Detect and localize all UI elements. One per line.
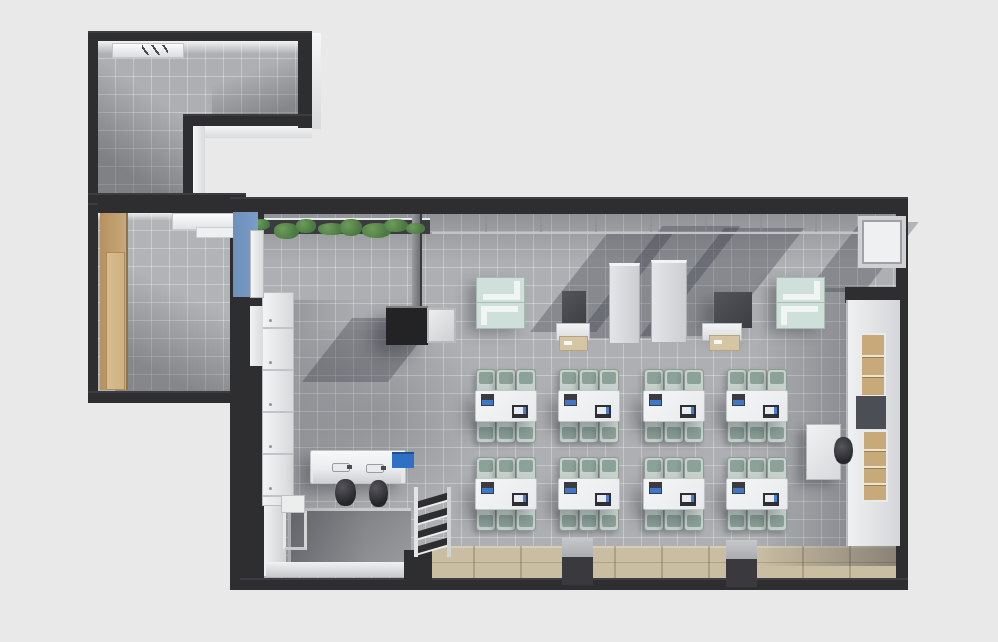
wall-face [195, 126, 312, 138]
wall [88, 31, 98, 203]
plant [406, 223, 425, 234]
locker-handle [269, 445, 272, 448]
locker-handle [269, 319, 272, 322]
wall-face [312, 33, 321, 129]
laptop [564, 482, 577, 494]
tablet-device [763, 405, 779, 418]
structural-pillar [562, 538, 593, 585]
cubby-shelf [864, 449, 886, 451]
small-side-table [281, 495, 305, 513]
sofa [476, 302, 525, 329]
blue-accent-panel [392, 452, 414, 468]
floor-plan-scene [0, 0, 998, 642]
stool [369, 480, 388, 507]
rack-slat [418, 523, 447, 538]
locker-drawer-line [263, 369, 293, 371]
wall-face [266, 562, 410, 577]
wardrobe-door [106, 252, 125, 390]
wall [88, 203, 98, 403]
desk-cluster-r1-c3 [643, 390, 703, 420]
pillar-cap [726, 540, 757, 560]
copier-machine [427, 308, 456, 343]
locker-handle [269, 487, 272, 490]
laptop [481, 482, 494, 494]
rack-slat [418, 508, 447, 523]
laptop [481, 394, 494, 406]
utility-room-floor-leg [98, 41, 183, 196]
pillar-body [562, 557, 593, 585]
cubby-shelf [864, 483, 886, 485]
laptop [564, 394, 577, 406]
sink-counter-front [313, 470, 401, 483]
locker-handle [269, 403, 272, 406]
wall-panel [250, 306, 263, 366]
desk-cluster-r2-c4 [726, 478, 786, 508]
desk-cluster-r2-c1 [475, 478, 535, 508]
mint-sofa-pair-right [776, 277, 823, 327]
small-side-table-legs [283, 511, 307, 550]
display-lectern-desk [559, 336, 588, 351]
structural-pillar [726, 540, 757, 587]
whiteboard-rail [432, 215, 898, 234]
pillar-body [726, 559, 757, 587]
copier-station-cabinet [386, 306, 428, 345]
locker-drawer-line [263, 327, 293, 329]
rack-slat [418, 538, 447, 553]
tablet-device [512, 405, 528, 418]
locker-drawer-line [263, 453, 293, 455]
laptop [649, 482, 662, 494]
mint-sofa-pair-left [476, 277, 523, 327]
tall-cabinet [609, 263, 640, 344]
wall [183, 114, 193, 203]
cubby-shelf [864, 466, 886, 468]
stool [335, 479, 356, 506]
ladder-rack [414, 487, 451, 557]
locker-drawer-line [263, 411, 293, 413]
desk-cluster-r2-c3 [643, 478, 703, 508]
rack-slat [418, 493, 447, 508]
tablet-device [763, 493, 779, 506]
cubby-shelf [862, 375, 884, 377]
desk-cluster-r1-c2 [558, 390, 618, 420]
tablet-device [680, 493, 696, 506]
desk-cluster-r1-c1 [475, 390, 535, 420]
side-room-counter-step [196, 227, 235, 238]
door-panel [250, 230, 264, 298]
counter-fixtures [142, 45, 168, 55]
wall [183, 114, 312, 126]
plant [384, 219, 408, 232]
sofa [776, 302, 825, 329]
desk-cluster-r2-c2 [558, 478, 618, 508]
sofa [476, 277, 525, 304]
laptop [732, 482, 745, 494]
shelf-slate-panel [856, 396, 886, 429]
locker-handle [269, 361, 272, 364]
laptop [732, 394, 745, 406]
faucet [366, 464, 384, 473]
office-chair [834, 437, 853, 464]
pillar-cap [562, 538, 593, 558]
faucet [332, 463, 350, 472]
window-side-wood-floor [428, 546, 898, 580]
tablet-device [595, 405, 611, 418]
locker-cabinet-column [262, 292, 294, 506]
wall [88, 31, 312, 41]
tablet-device [680, 405, 696, 418]
plant [340, 219, 362, 236]
tablet-device [595, 493, 611, 506]
tall-cabinet [651, 260, 687, 343]
wall [230, 197, 908, 214]
window [858, 216, 906, 268]
laptop [649, 394, 662, 406]
cubby-shelf [862, 355, 884, 357]
wall [88, 391, 246, 403]
plant [296, 219, 316, 233]
wooden-cubby-upper [860, 333, 886, 397]
wall [88, 193, 246, 213]
tablet-device [512, 493, 528, 506]
wall-face [193, 126, 205, 200]
display-lectern-desk [709, 335, 740, 351]
sofa [776, 277, 825, 304]
wooden-cubby-lower [862, 430, 888, 502]
desk-cluster-r1-c4 [726, 390, 786, 420]
